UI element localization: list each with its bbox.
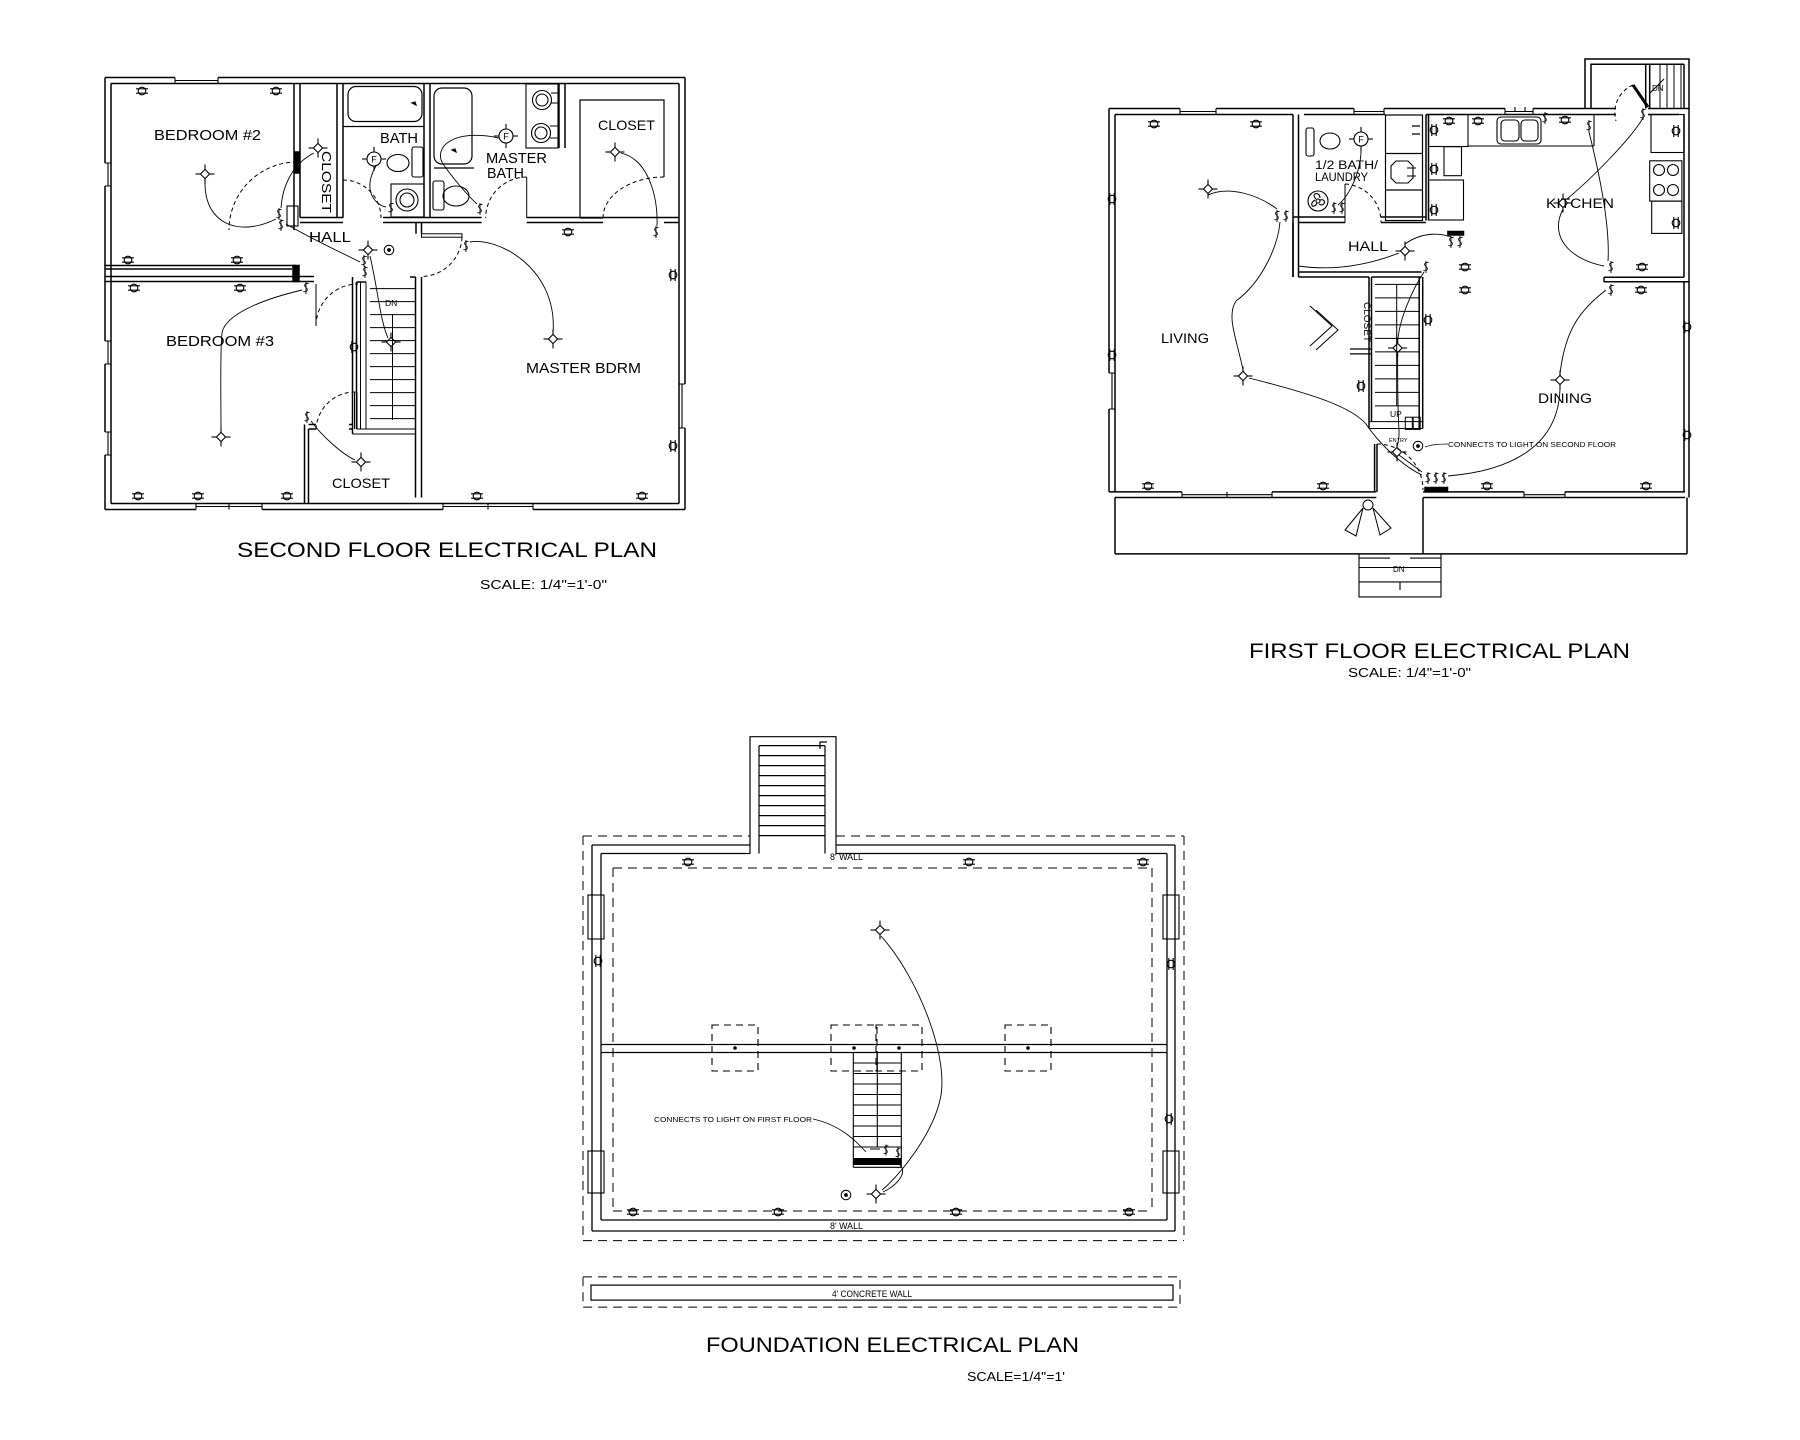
svg-text:SCALE=1/4"=1': SCALE=1/4"=1' — [967, 1370, 1065, 1384]
svg-text:1/2 BATH/: 1/2 BATH/ — [1315, 160, 1379, 172]
svg-text:CLOSET: CLOSET — [332, 475, 390, 491]
svg-text:BATH: BATH — [487, 165, 524, 182]
svg-text:SCALE: 1/4"=1'-0": SCALE: 1/4"=1'-0" — [480, 578, 607, 592]
svg-text:CONNECTS TO LIGHT ON FIRST: CONNECTS TO LIGHT ON FIRST FLOOR — [654, 1115, 813, 1124]
svg-text:HALL: HALL — [1348, 239, 1389, 254]
svg-text:SCALE: 1/4"=1'-0": SCALE: 1/4"=1'-0" — [1348, 666, 1471, 680]
svg-text:CLOSET: CLOSET — [319, 151, 334, 213]
svg-text:BATH: BATH — [380, 130, 418, 147]
svg-text:UP: UP — [1390, 409, 1402, 419]
svg-text:MASTER BDRM: MASTER BDRM — [526, 360, 641, 377]
svg-text:LIVING: LIVING — [1161, 331, 1209, 346]
svg-text:CLOSET: CLOSET — [598, 117, 655, 133]
svg-text:SECOND FLOOR ELECTRICAL PLA: SECOND FLOOR ELECTRICAL PLAN — [237, 539, 657, 562]
svg-text:FOUNDATION ELECTRICAL PLAN: FOUNDATION ELECTRICAL PLAN — [706, 1334, 1079, 1357]
svg-text:BEDROOM #3: BEDROOM #3 — [166, 333, 274, 350]
svg-text:4' CONCRETE WALL: 4' CONCRETE WALL — [832, 1289, 912, 1299]
svg-text:FIRST FLOOR ELECTRICAL PLAN: FIRST FLOOR ELECTRICAL PLAN — [1249, 640, 1630, 663]
svg-text:DINING: DINING — [1538, 391, 1592, 406]
svg-text:HALL: HALL — [309, 229, 351, 246]
svg-text:LAUNDRY: LAUNDRY — [1315, 172, 1368, 184]
svg-text:BEDROOM #2: BEDROOM #2 — [154, 127, 261, 144]
svg-text:DN: DN — [1393, 565, 1405, 574]
svg-text:CLOSET: CLOSET — [1362, 302, 1372, 343]
svg-text:8' WALL: 8' WALL — [830, 852, 863, 862]
svg-text:8' WALL: 8' WALL — [830, 1221, 863, 1231]
svg-text:DN: DN — [385, 298, 397, 308]
